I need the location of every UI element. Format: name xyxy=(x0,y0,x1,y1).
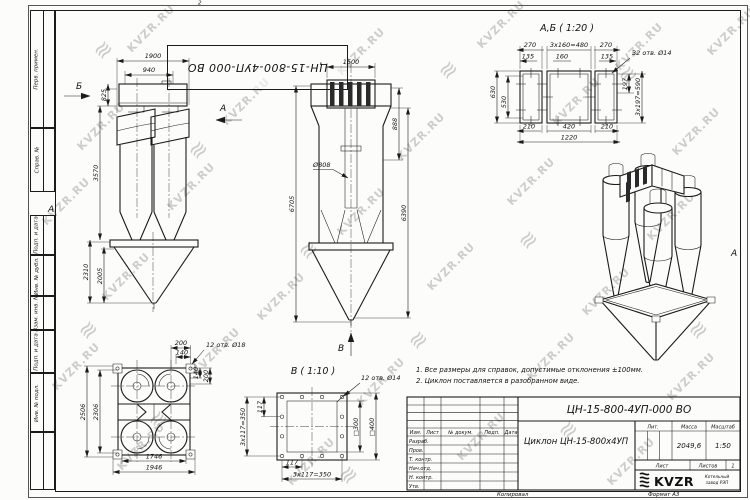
dim-side-888: 888 xyxy=(391,118,399,130)
dim-sec-210b: 210 xyxy=(601,123,613,131)
tb-brand-note-1: Котельный xyxy=(705,474,730,479)
tb-mass-label: Масса xyxy=(681,425,697,431)
kvzr-logo-icon xyxy=(640,473,649,486)
drawing-sheet: KVZR.RU KVZR.RU KVZR.RU KVZR.RU KVZR.RU … xyxy=(0,0,750,500)
view-arrow-a-label: А xyxy=(219,104,226,114)
tb-col-list: Лист xyxy=(425,430,440,436)
dim-sec-197: 197 xyxy=(621,77,629,90)
dim-flange-117b: 117 xyxy=(286,459,299,467)
tb-sheet-label: Лист xyxy=(655,464,670,470)
flange-v-title: В ( 1:10 ) xyxy=(291,366,335,377)
tb-scale-label: Масштаб xyxy=(711,425,735,431)
dim-sec-135b: 135 xyxy=(601,53,613,61)
dim-sec-480: 3x160=480 xyxy=(550,41,588,49)
tb-col-doc: № докум. xyxy=(447,430,473,436)
dim-plan-2506: 2506 xyxy=(79,404,87,421)
flange-holes-note: 12 отв. Ø14 xyxy=(361,374,400,382)
view-plan: 2506 2306 1746 1946 200 140 140 200 12 о… xyxy=(79,339,245,475)
view-section-ab: А,Б ( 1:20 ) 270 3x160=480 270 135 160 1… xyxy=(489,23,671,144)
dim-sec-210a: 210 xyxy=(523,123,535,131)
dim-sec-135a: 135 xyxy=(522,53,534,61)
tb-scale-value: 1:50 xyxy=(715,442,731,450)
tb-lit-label: Лит. xyxy=(646,425,659,431)
dim-flange-117l: 117 xyxy=(256,400,264,413)
view-front: 1900 940 825 3570 2310 2005 Б А xyxy=(64,52,242,312)
dim-front-3570: 3570 xyxy=(92,165,100,182)
top-zone-mark: 2 xyxy=(198,1,202,7)
dim-plan-1746: 1746 xyxy=(146,453,163,461)
tb-row-nkontr: Н. контр. xyxy=(409,475,433,481)
zone-marker-right: А xyxy=(730,249,737,259)
tb-format-label: Формат А3 xyxy=(648,492,680,498)
dim-plan-140t: 140 xyxy=(176,349,188,357)
dim-plan-200t: 200 xyxy=(175,339,187,347)
dim-side-6390: 6390 xyxy=(400,205,408,222)
dim-sec-590: 3x197=590 xyxy=(634,78,642,116)
tb-col-date: Дата xyxy=(504,430,518,436)
dim-side-1500: 1500 xyxy=(343,58,360,66)
sec-holes-note: 32 отв. Ø14 xyxy=(632,49,671,57)
dim-side-6705: 6705 xyxy=(288,196,296,213)
drawing-canvas: 2 А А 1900 940 825 3570 2 xyxy=(0,0,750,500)
dim-front-2310: 2310 xyxy=(82,264,90,281)
tb-col-sign: Подп. xyxy=(484,430,499,436)
tb-row-nachotd: Нач.отд. xyxy=(409,466,431,472)
dim-sec-160: 160 xyxy=(556,53,568,61)
dim-front-1900: 1900 xyxy=(145,52,162,60)
dim-sec-270a: 270 xyxy=(524,41,536,49)
dim-flange-350l: 3x117=350 xyxy=(239,408,247,446)
note-line-2: 2. Циклон поставляется в разобранном вид… xyxy=(416,377,579,385)
title-block: Изм. Лист № докум. Подп. Дата Разраб. Пр… xyxy=(407,397,740,498)
tb-row-prov: Пров. xyxy=(409,448,424,454)
dim-front-825: 825 xyxy=(100,89,108,101)
tb-row-razrab: Разраб. xyxy=(409,439,429,445)
dim-flange-350b: 3x117=350 xyxy=(293,471,331,479)
view-side: Ø808 1500 888 6705 6390 В xyxy=(288,58,411,356)
dim-sec-420: 420 xyxy=(563,123,575,131)
dim-plan-2306: 2306 xyxy=(92,404,100,421)
dim-front-2005: 2005 xyxy=(96,268,104,285)
tb-copied-label: Копировал xyxy=(497,492,529,498)
dim-front-940: 940 xyxy=(143,66,155,74)
technical-notes: 1. Все размеры для справок, допустимые о… xyxy=(416,366,643,385)
plan-holes-note: 12 отв. Ø18 xyxy=(206,341,245,349)
tb-row-utv: Утв. xyxy=(409,484,420,490)
dim-sec-530: 530 xyxy=(500,96,508,108)
note-line-1: 1. Все размеры для справок, допустимые о… xyxy=(416,366,643,374)
tb-brand: KVZR xyxy=(654,474,694,489)
tb-brand-note-2: завод РЭП xyxy=(706,480,729,485)
dim-flange-400: □400 xyxy=(368,418,376,437)
view-isometric xyxy=(595,154,715,361)
tb-designation: ЦН-15-800-4УП-000 ВО xyxy=(567,404,691,416)
zone-marker-left: А xyxy=(47,205,54,215)
dim-plan-200r: 200 xyxy=(202,370,210,382)
view-arrow-v-label: В xyxy=(338,344,344,354)
view-flange-v: В ( 1:10 ) 12 отв. Ø14 117 3x117=350 □30… xyxy=(239,366,400,482)
dim-plan-1946: 1946 xyxy=(146,464,163,472)
tb-sheets-label: Листов xyxy=(698,464,718,470)
dim-plan-140r: 140 xyxy=(192,367,200,379)
dim-sec-270b: 270 xyxy=(600,41,612,49)
dim-side-808: Ø808 xyxy=(312,161,331,169)
dim-sec-630: 630 xyxy=(489,86,497,98)
dim-sec-1220: 1220 xyxy=(561,134,578,142)
tb-row-tkontr: Т. контр. xyxy=(409,457,432,463)
dim-flange-300: □300 xyxy=(352,418,360,437)
tb-sheets-value: 1 xyxy=(731,464,734,470)
tb-col-izm: Изм. xyxy=(410,430,422,436)
tb-doc-name: Циклон ЦН-15-800х4УП xyxy=(524,437,629,447)
section-ab-title: А,Б ( 1:20 ) xyxy=(539,23,594,34)
tb-mass-value: 2049,6 xyxy=(677,442,702,450)
view-arrow-b-label: Б xyxy=(76,82,82,92)
